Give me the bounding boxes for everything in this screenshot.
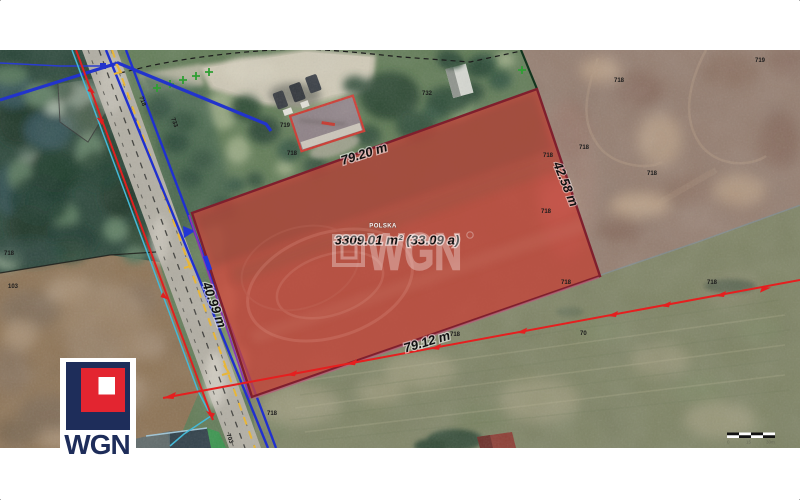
svg-text:719: 719 xyxy=(280,123,291,129)
svg-text:718: 718 xyxy=(647,171,658,177)
svg-text:30m: 30m xyxy=(766,440,775,445)
svg-text:718: 718 xyxy=(579,145,590,151)
svg-text:103: 103 xyxy=(8,284,19,290)
svg-text:718: 718 xyxy=(707,280,718,286)
svg-text:718: 718 xyxy=(4,251,15,257)
svg-text:718: 718 xyxy=(450,332,461,338)
svg-text:719: 719 xyxy=(755,58,766,64)
svg-text:718: 718 xyxy=(267,411,278,417)
svg-text:15: 15 xyxy=(746,440,752,445)
svg-text:718: 718 xyxy=(287,151,298,157)
svg-text:718: 718 xyxy=(543,153,554,159)
svg-text:70: 70 xyxy=(580,331,587,337)
svg-text:WGN: WGN xyxy=(64,429,129,460)
svg-text:718: 718 xyxy=(614,78,625,84)
svg-text:WGN: WGN xyxy=(368,223,462,281)
svg-text:732: 732 xyxy=(422,91,433,97)
svg-text:718: 718 xyxy=(541,209,552,215)
svg-text:718: 718 xyxy=(561,280,572,286)
